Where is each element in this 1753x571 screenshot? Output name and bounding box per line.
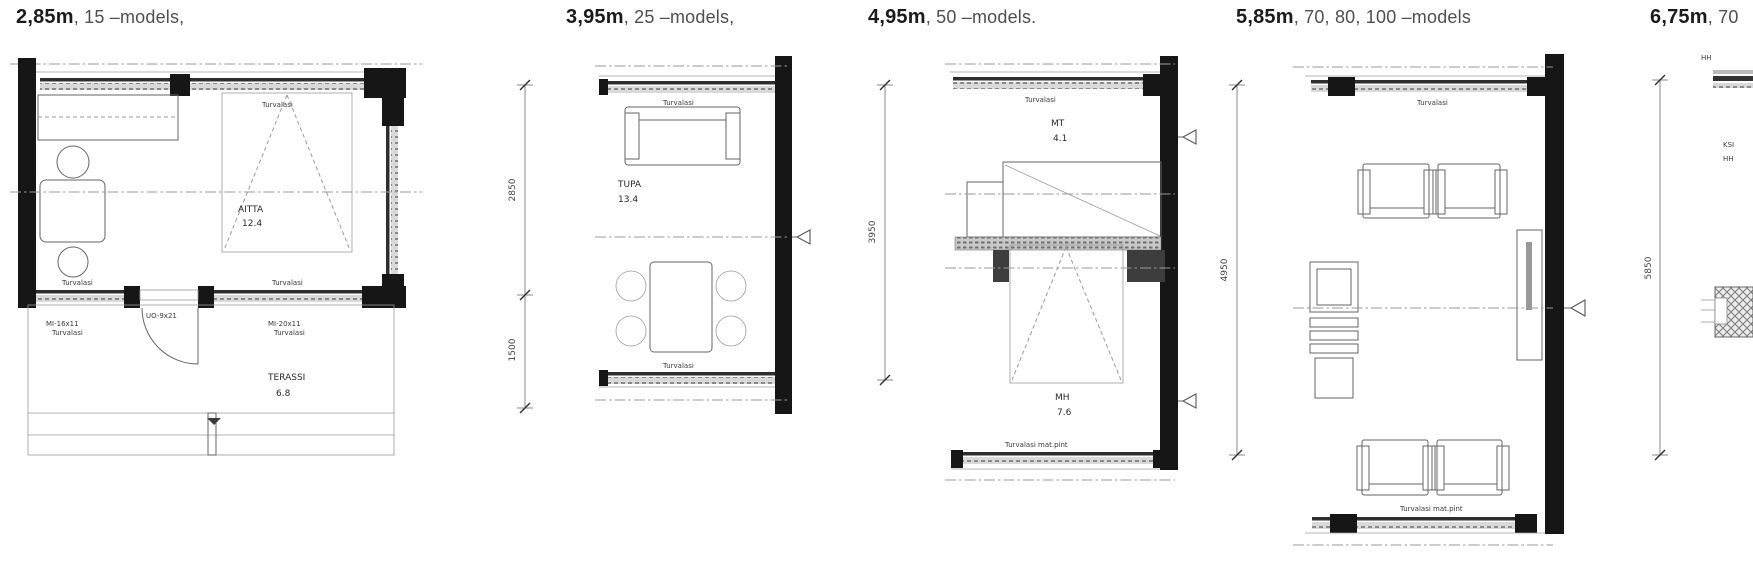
interior-wall-hatched bbox=[955, 237, 1161, 250]
glass-label: Turvalasi bbox=[261, 101, 293, 109]
dimension-line: 5850 bbox=[1644, 75, 1668, 460]
plan-width-label: 2,85m bbox=[16, 6, 74, 28]
plan-285-drawing: Turvalasi AITTA 12.4 Turvalasi Turvalasi… bbox=[10, 50, 440, 470]
exterior-wall bbox=[775, 56, 792, 414]
wall-stubs bbox=[993, 250, 1165, 282]
dimension-line: 3950 bbox=[868, 80, 893, 385]
plan-width-label: 3,95m bbox=[566, 6, 624, 28]
dimension-line: 4950 bbox=[1220, 80, 1245, 460]
plan-width-label: 5,85m bbox=[1236, 6, 1294, 28]
fireplace-hatched bbox=[1701, 287, 1753, 337]
section-marker bbox=[1564, 300, 1585, 316]
plan-585-drawing: 4950 Turvalasi bbox=[1165, 50, 1635, 565]
window-top bbox=[599, 76, 775, 95]
window-top bbox=[950, 72, 1178, 96]
room-label: TUPA bbox=[617, 180, 642, 190]
armchair bbox=[1432, 440, 1509, 495]
dimension-value: 5850 bbox=[1644, 256, 1654, 279]
plan-title-395: 3,95m, 25 –models, bbox=[566, 6, 734, 29]
dimension-value: 3950 bbox=[868, 220, 878, 243]
door-code: UO-9x21 bbox=[146, 312, 177, 320]
glass-label: Turvalasi bbox=[51, 329, 83, 337]
armchair bbox=[1433, 164, 1507, 218]
glass-label: Turvalasi mat.pint bbox=[1004, 441, 1068, 449]
room-label: MT bbox=[1051, 119, 1065, 129]
sofa bbox=[625, 107, 740, 165]
kitchen-counter bbox=[38, 95, 178, 140]
glass-label: Turvalasi bbox=[273, 329, 305, 337]
armchair bbox=[1358, 164, 1436, 218]
terrace-label: TERASSI bbox=[267, 373, 305, 383]
plan-675-drawing: HH KSI HH 5850 bbox=[1635, 0, 1753, 571]
room-label: HH bbox=[1701, 54, 1712, 62]
dimension-value: 2850 bbox=[508, 178, 518, 201]
dimension-line: 2850 1500 bbox=[508, 80, 533, 413]
glass-label: Turvalasi bbox=[662, 99, 694, 107]
window-code: MI-16x11 bbox=[46, 320, 79, 328]
glass-label: Turvalasi bbox=[61, 279, 93, 287]
plan-models-label: , 70, 80, 100 –models bbox=[1294, 7, 1471, 27]
room-area: 12.4 bbox=[242, 219, 262, 229]
dining-set bbox=[616, 262, 746, 352]
exterior-wall bbox=[1545, 54, 1564, 534]
glass-label: Turvalasi bbox=[1416, 99, 1448, 107]
dimension-value: 1500 bbox=[508, 338, 518, 361]
window-code: MI-20x11 bbox=[268, 320, 301, 328]
armchair bbox=[1357, 440, 1435, 495]
window-bottom bbox=[1305, 514, 1545, 533]
plan-models-label: , 15 –models, bbox=[74, 7, 185, 27]
window-top bbox=[1305, 76, 1545, 96]
room-area: 13.4 bbox=[618, 195, 638, 205]
room-area: 4.1 bbox=[1053, 134, 1067, 144]
entry-door bbox=[140, 290, 198, 364]
plan-width-label: 4,95m bbox=[868, 6, 926, 28]
step-marker bbox=[207, 418, 221, 425]
bed-symbol bbox=[1010, 245, 1123, 383]
window-right bbox=[386, 126, 398, 274]
glass-label: Turvalasi mat.pint bbox=[1399, 505, 1463, 513]
window-top bbox=[1713, 70, 1753, 88]
room-label: MH bbox=[1055, 393, 1070, 403]
glass-label: Turvalasi bbox=[662, 362, 694, 370]
plan-models-label: , 25 –models, bbox=[624, 7, 735, 27]
room-label: AITTA bbox=[238, 205, 264, 215]
room-label: HH bbox=[1723, 155, 1734, 163]
terrace bbox=[28, 305, 394, 455]
room-label: KSI bbox=[1723, 141, 1734, 149]
plan-title-585: 5,85m, 70, 80, 100 –models bbox=[1236, 6, 1471, 29]
fireplace-column bbox=[1517, 230, 1542, 360]
window-bottom bbox=[599, 370, 775, 387]
glass-label: Turvalasi bbox=[271, 279, 303, 287]
plan-title-495: 4,95m, 50 –models. bbox=[868, 6, 1036, 29]
room-area: 7.6 bbox=[1057, 408, 1072, 418]
terrace-area: 6.8 bbox=[276, 389, 291, 399]
dimension-value: 4950 bbox=[1220, 258, 1230, 281]
floor-plans-sheet: 2,85m, 15 –models, 3,95m, 25 –models, 4,… bbox=[0, 0, 1753, 571]
section-marker bbox=[792, 230, 810, 244]
window-top bbox=[36, 72, 364, 90]
plan-models-label: , 50 –models. bbox=[926, 7, 1037, 27]
dining-table bbox=[40, 146, 105, 277]
kitchen-counter bbox=[967, 162, 1161, 237]
shelf-unit bbox=[1310, 262, 1358, 398]
window-bottom bbox=[951, 450, 1178, 469]
plan-495-drawing: 3950 Turvalasi MT 4.1 MH 7.6 bbox=[855, 50, 1215, 500]
plan-395-drawing: 2850 1500 Turvalasi TUPA 13.4 bbox=[495, 50, 835, 480]
glass-label: Turvalasi bbox=[1024, 96, 1056, 104]
plan-title-285: 2,85m, 15 –models, bbox=[16, 6, 184, 29]
